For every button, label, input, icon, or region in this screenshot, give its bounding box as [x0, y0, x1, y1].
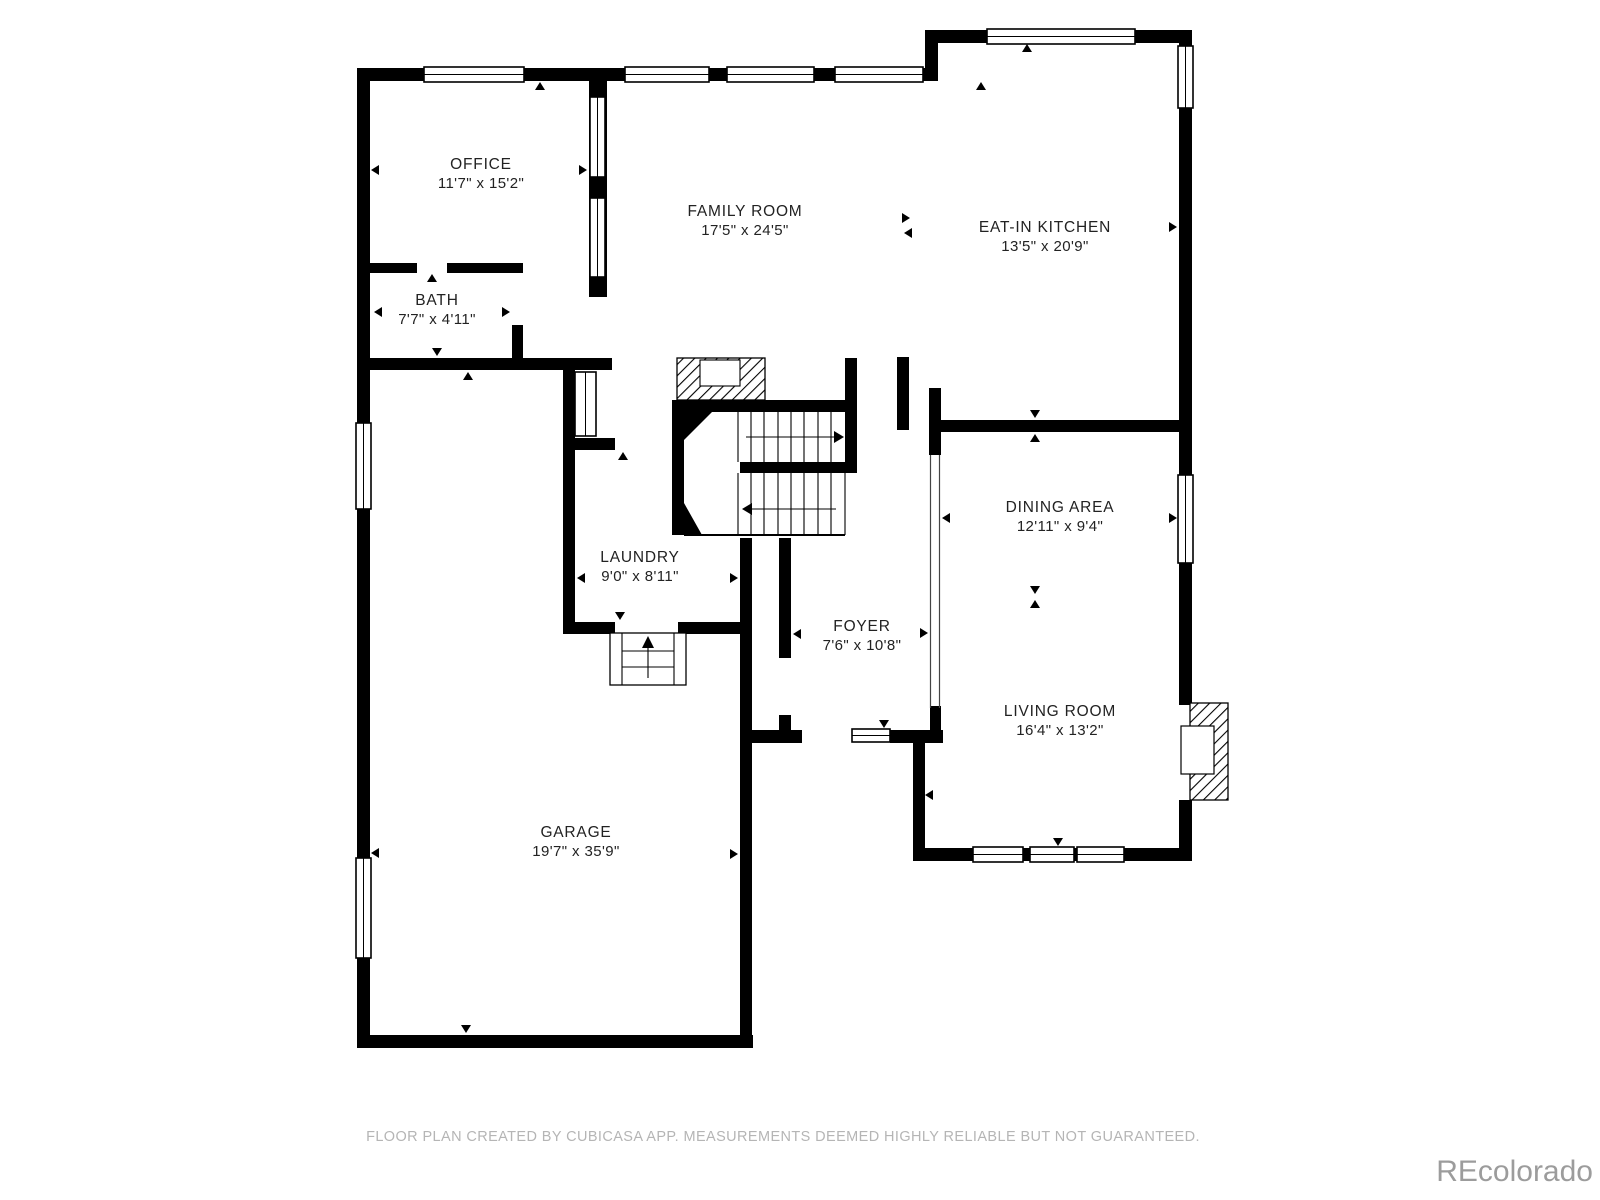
measure-tick-icon [1169, 513, 1177, 523]
wall-segment [929, 420, 1179, 432]
measure-tick-icon [1030, 410, 1040, 418]
window [973, 847, 1023, 862]
window [727, 67, 814, 82]
room-label-garage: GARAGE 19'7" x 35'9" [532, 824, 619, 860]
room-label-bath: BATH 7'7" x 4'11" [398, 292, 476, 328]
room-dims: 17'5" x 24'5" [701, 222, 788, 239]
measure-tick-icon [925, 790, 933, 800]
window [424, 67, 524, 82]
window [987, 29, 1135, 44]
wall-segment [779, 538, 791, 658]
window [1178, 46, 1193, 108]
measure-tick-icon [942, 513, 950, 523]
measure-tick-icon [577, 573, 585, 583]
wall-segment [563, 438, 615, 450]
wall-segment [779, 715, 791, 743]
room-dims: 16'4" x 13'2" [1016, 722, 1103, 739]
measure-tick-icon [1030, 586, 1040, 594]
room-label-family-room: FAMILY ROOM 17'5" x 24'5" [687, 203, 802, 239]
stair-arrow-icon [742, 503, 752, 515]
window [835, 67, 923, 82]
room-name: FOYER [833, 618, 890, 635]
measure-tick-icon [879, 720, 889, 728]
measure-tick-icon [904, 228, 912, 238]
measure-tick-icon [1022, 44, 1032, 52]
measure-tick-icon [976, 82, 986, 90]
wall-segment [678, 622, 752, 634]
measure-tick-icon [461, 1025, 471, 1033]
measure-ticks [371, 44, 1177, 1033]
front-door [852, 729, 890, 742]
room-label-office: OFFICE 11'7" x 15'2" [438, 156, 524, 192]
wall-segment [750, 730, 802, 743]
window [1178, 475, 1193, 563]
room-dims: 7'6" x 10'8" [823, 637, 902, 654]
wall-segment [357, 358, 612, 370]
room-name: DINING AREA [1006, 499, 1115, 516]
room-dims: 13'5" x 20'9" [1001, 238, 1088, 255]
window [1077, 847, 1124, 862]
room-name: EAT-IN KITCHEN [979, 219, 1111, 236]
measure-tick-icon [793, 629, 801, 639]
wall-segment [512, 325, 523, 358]
measure-tick-icon [371, 165, 379, 175]
staircase [677, 358, 845, 535]
floor-plan-page: OFFICE 11'7" x 15'2" FAMILY ROOM 17'5" x… [0, 0, 1600, 1200]
wall-segment [930, 706, 941, 732]
wall-segment [357, 1035, 753, 1048]
room-label-kitchen: EAT-IN KITCHEN 13'5" x 20'9" [979, 219, 1111, 255]
room-divider [931, 455, 940, 708]
measure-tick-icon [579, 165, 587, 175]
door-leaf [575, 372, 596, 436]
wall-segment [684, 412, 712, 440]
measure-tick-icon [615, 612, 625, 620]
wall-segment [845, 358, 857, 462]
measure-tick-icon [371, 848, 379, 858]
watermark: REcolorado [1436, 1155, 1593, 1188]
measure-tick-icon [920, 628, 928, 638]
stair-treads-lower [684, 473, 845, 535]
room-label-laundry: LAUNDRY 9'0" x 8'11" [600, 549, 679, 585]
room-dims: 7'7" x 4'11" [398, 311, 476, 328]
measure-tick-icon [463, 372, 473, 380]
room-name: BATH [415, 292, 458, 309]
window [590, 97, 605, 177]
window [625, 67, 709, 82]
measure-tick-icon [427, 274, 437, 282]
room-name: OFFICE [450, 156, 512, 173]
wall-segment [1179, 43, 1192, 705]
window [590, 198, 605, 277]
measure-tick-icon [730, 573, 738, 583]
room-name: GARAGE [540, 824, 611, 841]
room-dims: 9'0" x 8'11" [601, 568, 679, 585]
wall-segment [740, 462, 857, 473]
fireplace [1181, 703, 1228, 800]
floor-plan-drawing: OFFICE 11'7" x 15'2" FAMILY ROOM 17'5" x… [0, 0, 1600, 1200]
room-name: FAMILY ROOM [687, 203, 802, 220]
stair-treads-upper [738, 412, 844, 462]
chimney [677, 358, 765, 400]
room-dims: 11'7" x 15'2" [438, 175, 524, 192]
measure-tick-icon [535, 82, 545, 90]
window [356, 858, 371, 958]
window [356, 423, 371, 509]
measure-tick-icon [502, 307, 510, 317]
room-labels: OFFICE 11'7" x 15'2" FAMILY ROOM 17'5" x… [398, 156, 1116, 860]
wall-segment [447, 263, 523, 273]
room-dims: 12'11" x 9'4" [1017, 518, 1103, 535]
room-dims: 19'7" x 35'9" [532, 843, 619, 860]
window [1030, 847, 1074, 862]
wall-segment [563, 370, 575, 634]
wall-segment [357, 263, 417, 273]
room-label-dining: DINING AREA 12'11" x 9'4" [1006, 499, 1115, 535]
wall-segment [929, 388, 941, 455]
measure-tick-icon [432, 348, 442, 356]
measure-tick-icon [1030, 600, 1040, 608]
room-label-foyer: FOYER 7'6" x 10'8" [823, 618, 902, 654]
measure-tick-icon [902, 213, 910, 223]
measure-tick-icon [1169, 222, 1177, 232]
measure-tick-icon [1053, 838, 1063, 846]
measure-tick-icon [1030, 434, 1040, 442]
measure-tick-icon [730, 849, 738, 859]
room-label-living: LIVING ROOM 16'4" x 13'2" [1004, 703, 1116, 739]
room-name: LAUNDRY [600, 549, 679, 566]
measure-tick-icon [374, 307, 382, 317]
stair-arrow-icon [834, 431, 844, 443]
wall-segment [672, 400, 857, 412]
garage-entry-steps [610, 633, 686, 685]
room-name: LIVING ROOM [1004, 703, 1116, 720]
wall-segment [897, 357, 909, 430]
wall-segment [913, 743, 925, 853]
wall-segment [740, 538, 752, 1048]
disclaimer-text: FLOOR PLAN CREATED BY CUBICASA APP. MEAS… [366, 1129, 1200, 1145]
measure-tick-icon [618, 452, 628, 460]
